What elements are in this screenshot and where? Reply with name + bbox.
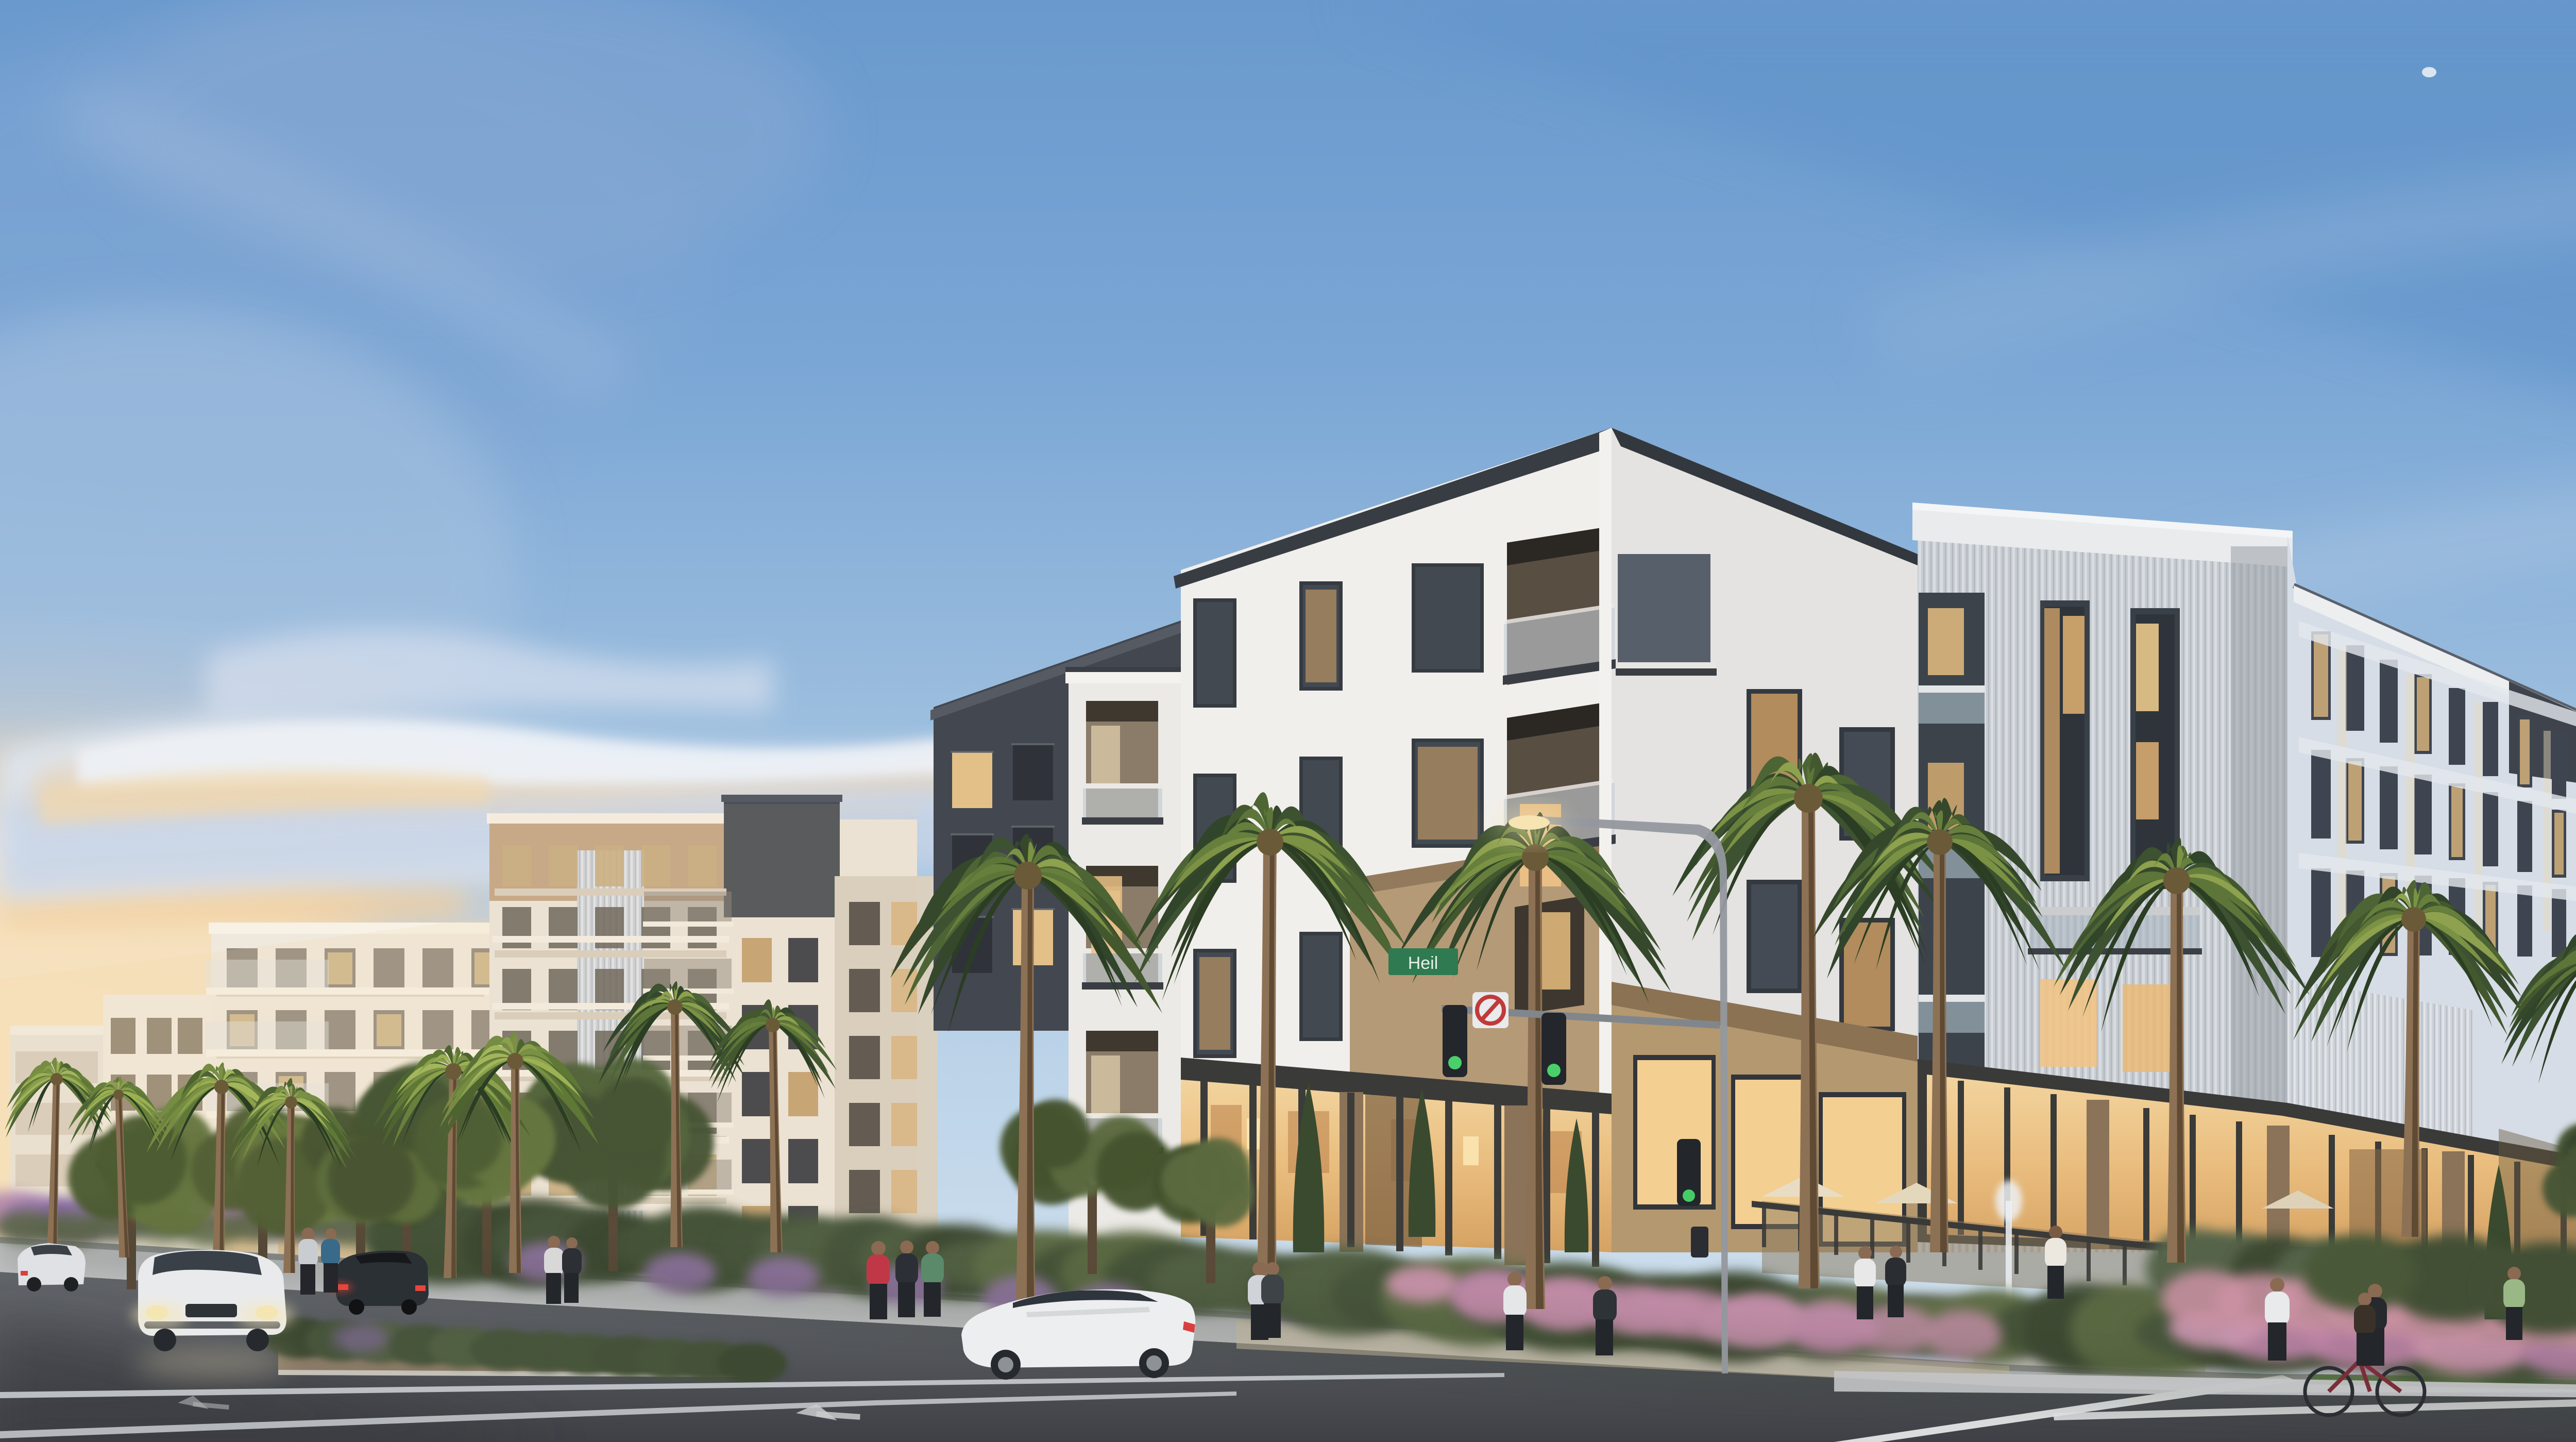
svg-text:Heil: Heil bbox=[1408, 953, 1438, 973]
